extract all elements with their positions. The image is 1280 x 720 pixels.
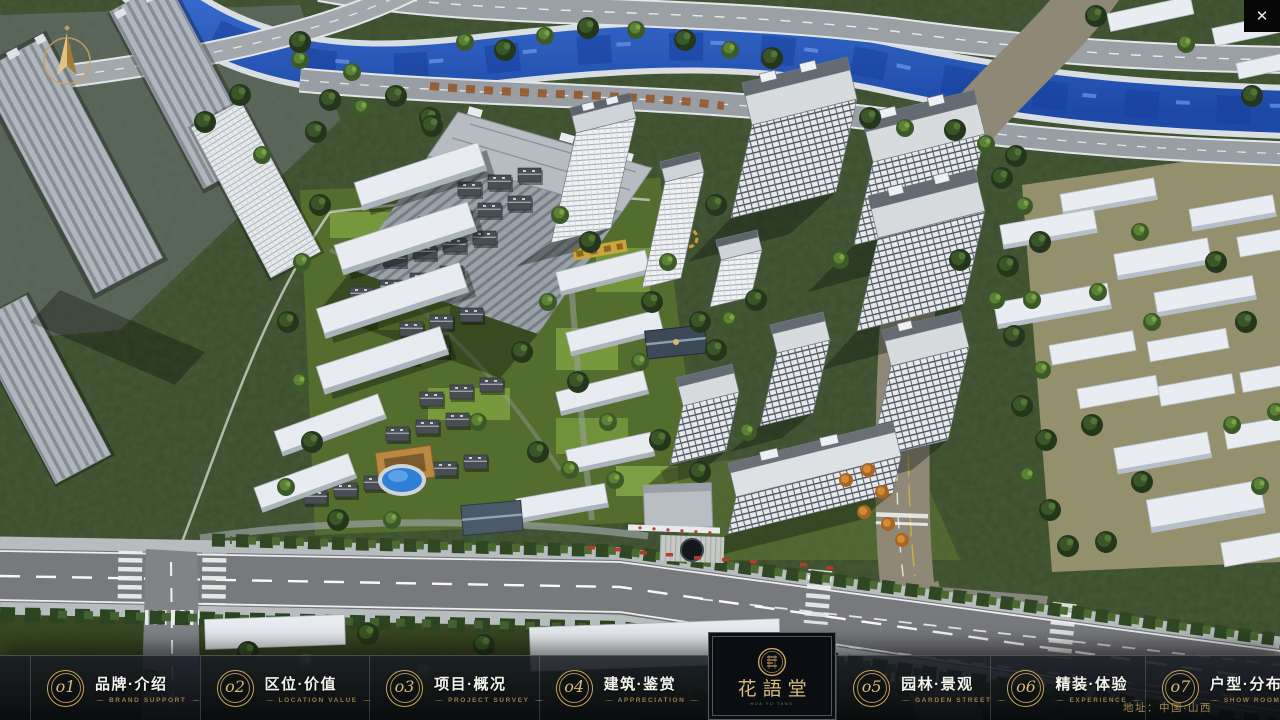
brand-name: 花語堂	[732, 680, 813, 699]
nav-label: 园林·景观	[901, 673, 990, 694]
nav-item-garden-landscape[interactable]: o5 园林·景观GARDEN STREET	[836, 656, 990, 720]
nav-number: o7	[1170, 679, 1190, 695]
nav-group-right: o5 园林·景观GARDEN STREET o6 精装·体验EXPERIENCE…	[836, 656, 1280, 720]
nav-number-badge: o3	[386, 670, 423, 707]
nav-label: 建筑·鉴赏	[604, 673, 700, 694]
nav-caption: PROJECT SURVEY	[434, 697, 539, 704]
bottom-navbar: o1 品牌·介绍BRAND SUPPORT o2 区位·价值LOCATION V…	[0, 655, 1280, 720]
nav-item-brand-intro[interactable]: o1 品牌·介绍BRAND SUPPORT	[30, 656, 200, 720]
nav-label: 项目·概况	[434, 673, 539, 694]
nav-number-badge: o5	[853, 670, 890, 707]
nav-number: o4	[564, 679, 584, 695]
project-address: 地址：中国·山西	[1123, 700, 1212, 715]
brand-subtitle: HUA YU TANG	[751, 702, 794, 706]
close-button[interactable]: ✕	[1244, 0, 1280, 32]
nav-number: o5	[862, 679, 882, 695]
nav-label: 户型·分布	[1210, 673, 1280, 694]
site-plan-render	[0, 0, 1280, 720]
nav-item-architecture[interactable]: o4 建筑·鉴赏APPRECIATION	[539, 656, 709, 720]
nav-number-badge: o2	[217, 670, 254, 707]
nav-label: 区位·价值	[265, 673, 370, 694]
nav-caption: LOCATION VALUE	[265, 697, 370, 704]
nav-caption: APPRECIATION	[604, 697, 700, 704]
nav-number-badge: o6	[1007, 670, 1044, 707]
brand-seal-icon	[757, 647, 787, 677]
nav-caption: BRAND SUPPORT	[95, 697, 200, 704]
brand-logo-panel[interactable]: 花語堂 HUA YU TANG	[708, 632, 836, 720]
nav-caption: SHOW ROOM	[1210, 697, 1280, 704]
nav-label: 品牌·介绍	[95, 673, 200, 694]
nav-label: 精装·体验	[1055, 673, 1141, 694]
presentation-window: ✕ o1 品牌·介绍BRAND SUPPORT o2 区位·价值LOCATION…	[0, 0, 1280, 720]
nav-number: o1	[56, 679, 76, 695]
nav-caption: GARDEN STREET	[901, 697, 990, 704]
nav-number-badge: o1	[47, 670, 84, 707]
nav-item-project-survey[interactable]: o3 项目·概况PROJECT SURVEY	[369, 656, 539, 720]
nav-item-interior-experience[interactable]: o6 精装·体验EXPERIENCE	[990, 656, 1144, 720]
nav-group-left: o1 品牌·介绍BRAND SUPPORT o2 区位·价值LOCATION V…	[0, 656, 708, 720]
compass-icon	[36, 24, 98, 90]
nav-number: o2	[225, 679, 245, 695]
nav-item-location-value[interactable]: o2 区位·价值LOCATION VALUE	[200, 656, 370, 720]
close-icon: ✕	[1256, 7, 1269, 25]
nav-number: o3	[395, 679, 415, 695]
nav-number-badge: o4	[556, 670, 593, 707]
nav-number: o6	[1016, 679, 1036, 695]
